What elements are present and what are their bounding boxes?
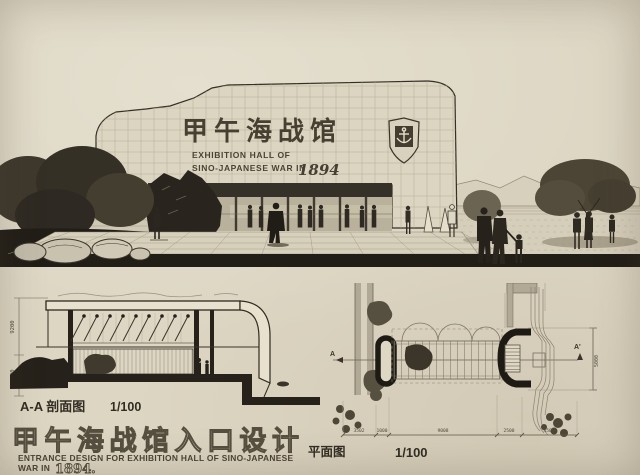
plan-dim-0: 3502 (353, 428, 364, 434)
skylight-fins (71, 314, 190, 341)
canopy-arcs (402, 323, 500, 341)
plan-scale: 1/100 (395, 445, 428, 460)
marker-a-arrow-icon (336, 357, 343, 363)
terrace-contours (531, 287, 554, 435)
plan-marker-a: A (330, 351, 335, 358)
marker-a-prime-arrow-icon (577, 353, 583, 360)
section-figures (197, 358, 209, 375)
section-dim-upper: 9200 (10, 320, 16, 333)
presentation-board: 甲午海战馆 EXHIBITION HALL OF SINO-JAPANESE W… (0, 0, 640, 475)
plan-hall-wall (501, 329, 545, 388)
plan-marker-a-prime: A' (574, 344, 581, 351)
section-label: A-A 剖面图 (20, 399, 85, 414)
footer-year: 1894. (55, 462, 96, 475)
plan-bottom-dimension: 3502 1000 9008 2500 4500 (341, 395, 579, 437)
section-scale: 1/100 (110, 400, 141, 414)
plan-dim-4: 4500 (543, 428, 554, 434)
facade-subtitle-line1: EXHIBITION HALL OF (192, 150, 290, 160)
plan-walkway (392, 323, 502, 383)
plan-dim-right: 5000 (594, 355, 600, 367)
corridor-rock (84, 354, 116, 374)
roof-terrain-scribble (58, 293, 238, 297)
facade-subtitle-line2: SINO-JAPANESE WAR IN (192, 163, 306, 173)
facade-title-zh: 甲午海战馆 (182, 116, 342, 147)
footer-subtitle-line2: WAR IN (18, 463, 50, 473)
section-curved-nose (240, 301, 270, 383)
plan-entry-portal (378, 338, 394, 384)
perspective-drawing: 甲午海战馆 EXHIBITION HALL OF SINO-JAPANESE W… (0, 0, 640, 272)
plan-vegetation (333, 405, 572, 437)
section-drawing: 9200 2400 (6, 283, 326, 418)
plan-dim-1: 1000 (376, 428, 387, 434)
title-block: 甲午海战馆入口设计 ENTRANCE DESIGN FOR EXHIBITION… (8, 420, 348, 475)
plan-dim-3: 2500 (503, 428, 514, 434)
plan-dim-2: 9008 (437, 428, 448, 434)
foreground-ground-band (0, 254, 640, 267)
section-building (36, 301, 270, 397)
plan-right-dimension (528, 328, 597, 390)
facade-year: 1894 (298, 161, 340, 179)
plan-drawing: A A' (328, 283, 640, 443)
section-car-blob (277, 382, 289, 387)
